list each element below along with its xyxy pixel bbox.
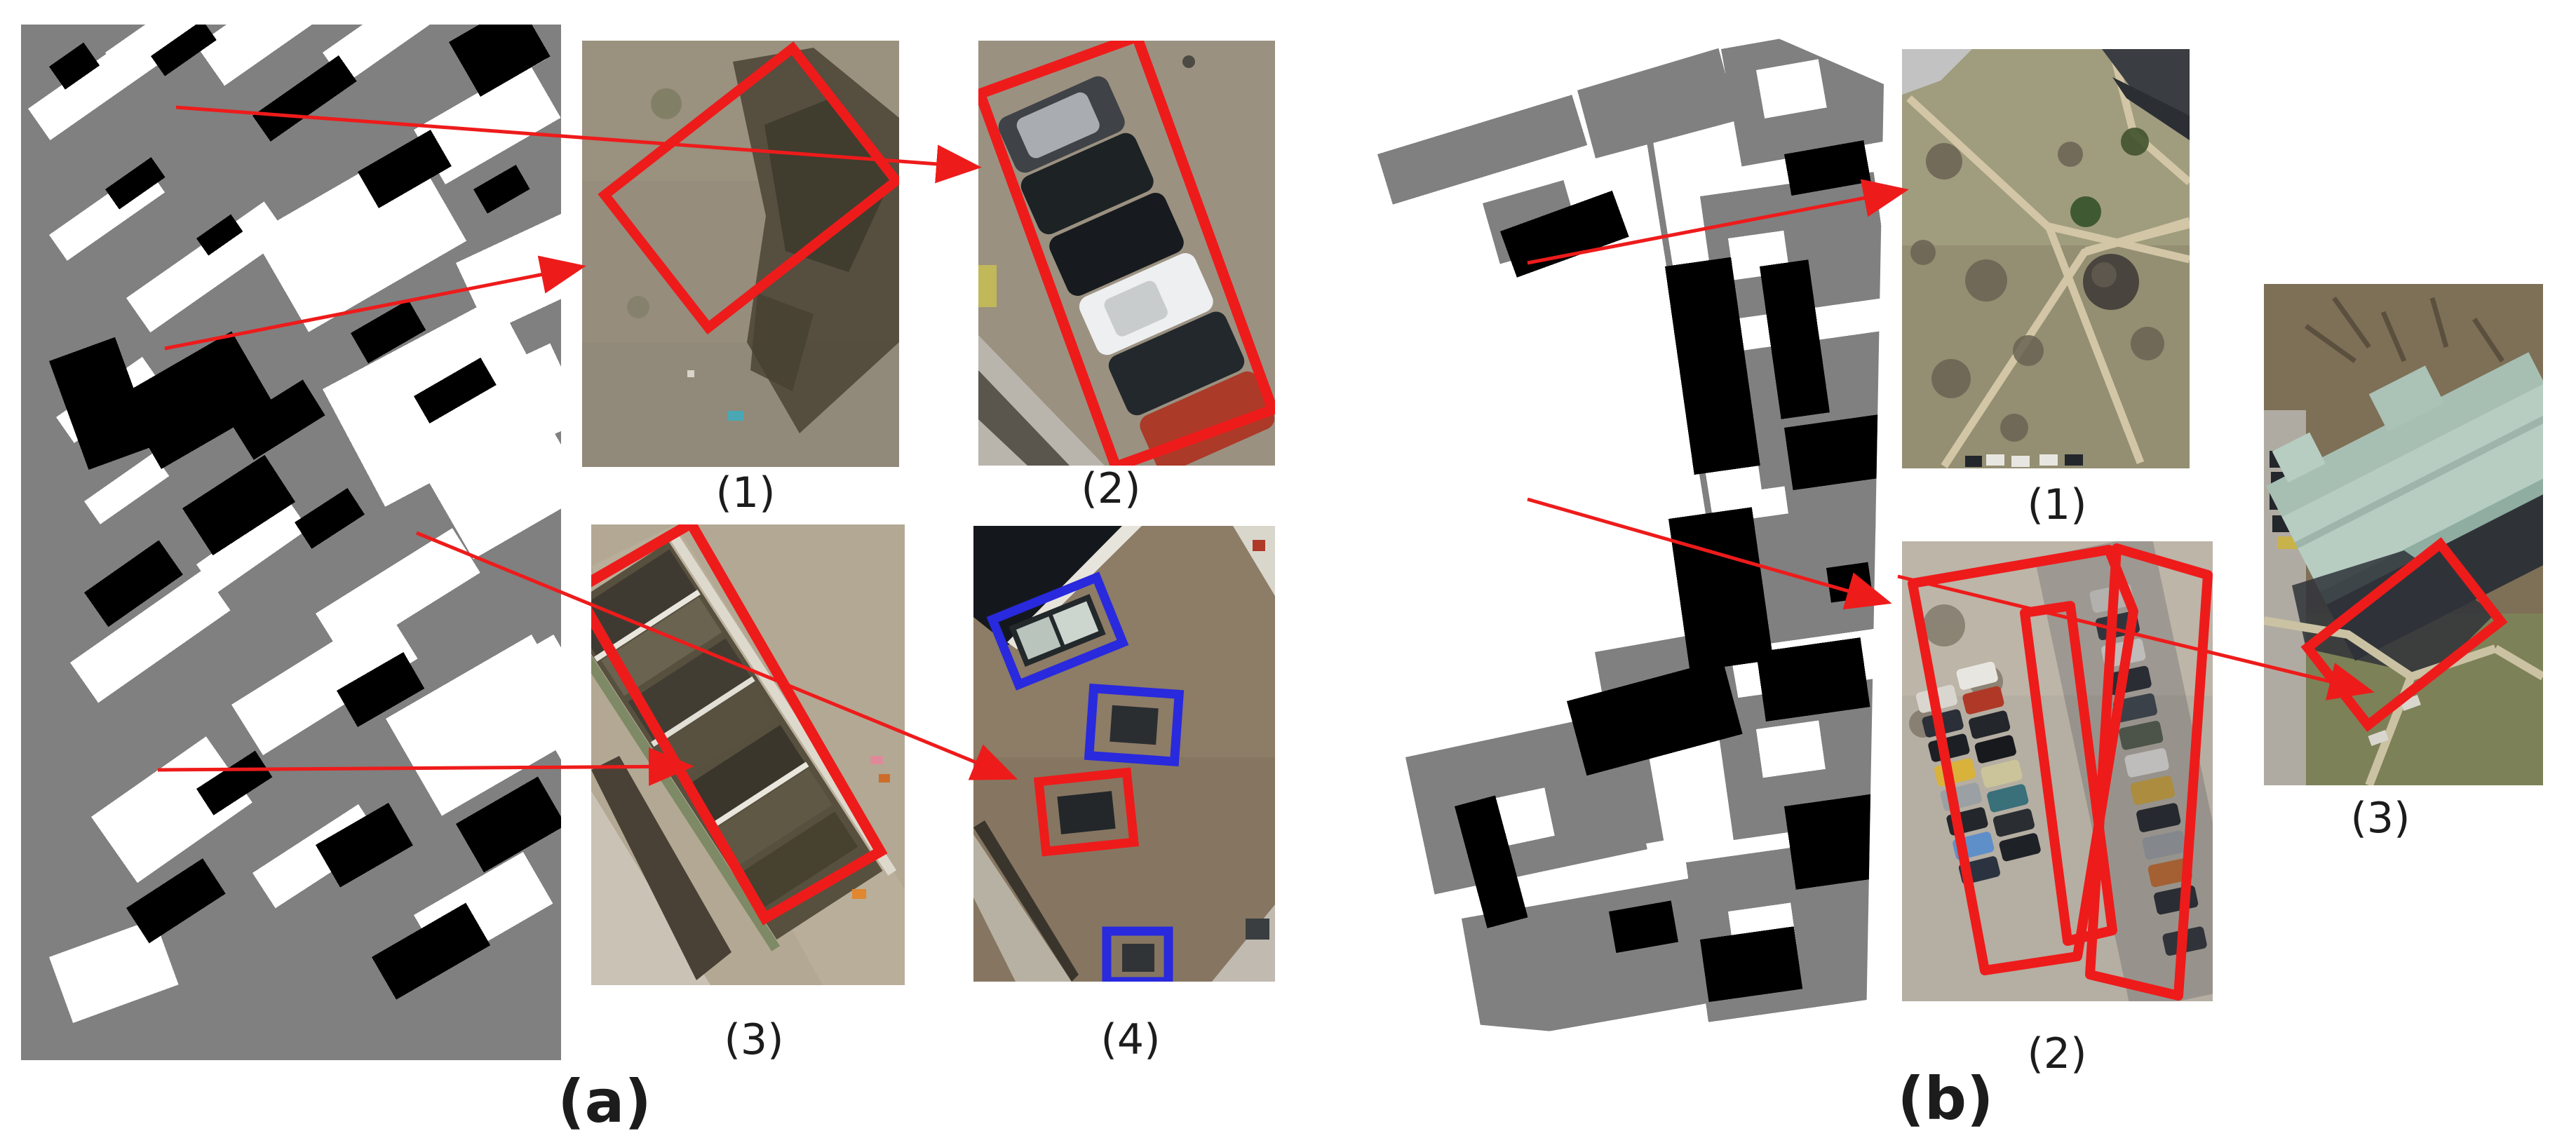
segmentation-mask-a xyxy=(21,25,561,1060)
crop-a-1 xyxy=(582,41,899,467)
crop-b-2 xyxy=(1902,541,2213,1001)
crop-a-1-graphic xyxy=(582,41,899,467)
mask-a-graphic xyxy=(21,25,561,1060)
crop-a-3 xyxy=(591,524,905,985)
crop-a-2-graphic xyxy=(978,41,1275,466)
crop-a-4-graphic xyxy=(973,526,1275,982)
label-a-crop-1: (1) xyxy=(661,468,830,517)
crop-b-2-graphic xyxy=(1902,541,2213,1001)
crop-b-1 xyxy=(1902,49,2190,468)
label-a-crop-4: (4) xyxy=(1046,1015,1215,1064)
crop-a-3-graphic xyxy=(591,524,905,985)
label-a-crop-3: (3) xyxy=(670,1015,838,1064)
label-b-crop-1: (1) xyxy=(1973,480,2141,529)
crop-a-4 xyxy=(973,526,1275,982)
caption-b: (b) xyxy=(1840,1064,2051,1133)
label-b-crop-3: (3) xyxy=(2296,794,2464,843)
segmentation-mask-b xyxy=(1363,28,1888,1064)
caption-a: (a) xyxy=(499,1067,710,1136)
crop-a-2 xyxy=(978,41,1275,466)
crop-b-3-graphic xyxy=(2264,284,2543,785)
label-a-crop-2: (2) xyxy=(1027,464,1195,513)
figure-canvas: (1) (2) (3) (4) (a) xyxy=(0,0,2576,1145)
mask-b-graphic xyxy=(1363,28,1888,1064)
crop-b-3 xyxy=(2264,284,2543,785)
crop-b-1-graphic xyxy=(1902,49,2190,468)
